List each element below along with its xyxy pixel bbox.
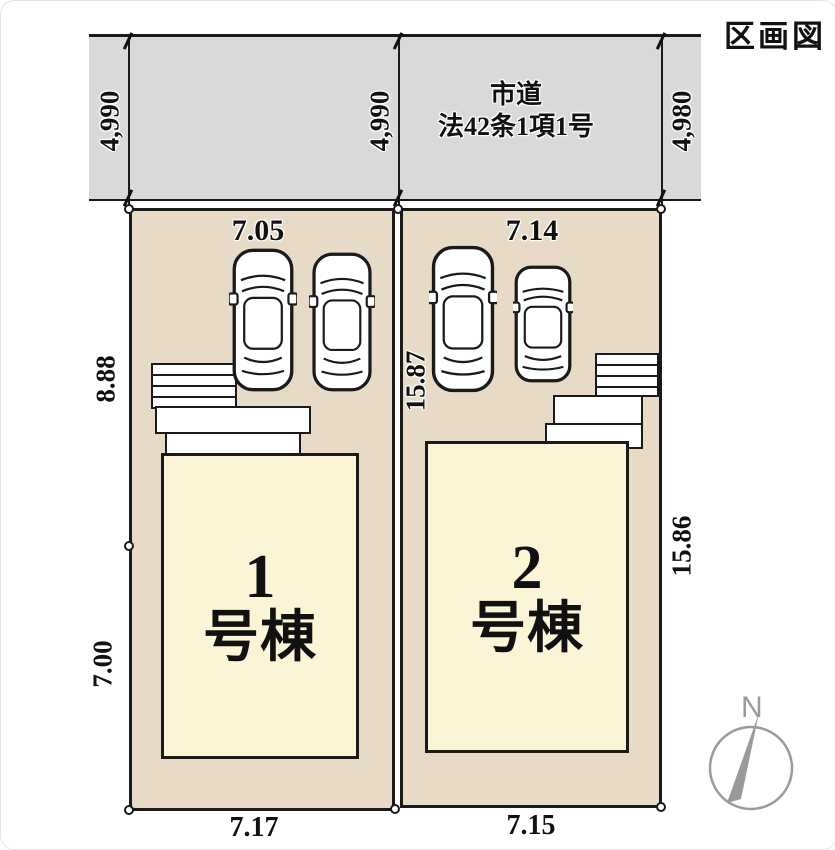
lot-1-left-upper-dim: 8.88 bbox=[91, 355, 122, 402]
lot-2-porch-step-upper bbox=[553, 395, 643, 425]
lot-2-left-dim: 15.87 bbox=[401, 351, 432, 412]
compact-car-icon bbox=[513, 264, 573, 384]
car-icon bbox=[229, 247, 297, 393]
road-name-line2: 法42条1項1号 bbox=[438, 112, 594, 141]
building-1-suffix: 号棟 bbox=[203, 609, 317, 667]
boundary-marker bbox=[393, 204, 403, 214]
boundary-marker bbox=[656, 802, 666, 812]
building-2-number: 2 bbox=[470, 536, 584, 600]
road-width-dim-left: 4,990 bbox=[95, 91, 126, 152]
building-1-number: 1 bbox=[203, 545, 317, 609]
building-1-label: 1 号棟 bbox=[203, 545, 317, 668]
lot-2-stairs bbox=[595, 353, 659, 397]
car-icon bbox=[429, 243, 497, 395]
boundary-marker bbox=[656, 204, 666, 214]
road-dimension-line-left bbox=[128, 34, 130, 210]
road-width-dim-right: 4,980 bbox=[667, 91, 698, 152]
building-2-suffix: 号棟 bbox=[470, 600, 584, 658]
building-2-label: 2 号棟 bbox=[470, 536, 584, 659]
road-width-dim-middle: 4,990 bbox=[365, 91, 396, 152]
compass-north-text: N bbox=[741, 691, 763, 725]
road-name-line1: 市道 bbox=[490, 80, 542, 109]
boundary-marker bbox=[124, 204, 134, 214]
building-1: 1 号棟 bbox=[161, 453, 359, 759]
lot-1-top-dim: 7.05 bbox=[232, 214, 285, 248]
boundary-marker bbox=[124, 805, 134, 815]
lot-1-porch-step-upper bbox=[155, 406, 311, 434]
boundary-marker bbox=[390, 804, 400, 814]
lot-2-right-dim: 15.86 bbox=[667, 516, 698, 577]
lot-1-stairs bbox=[151, 363, 237, 409]
boundary-marker bbox=[124, 541, 134, 551]
lot-2-top-dim: 7.14 bbox=[506, 214, 559, 248]
plot-plan: 区画図 市道 法42条1項1号 4,990 4,990 4,980 1 号棟 2… bbox=[0, 0, 835, 850]
page-title: 区画図 bbox=[724, 11, 826, 56]
road-top-boundary-line bbox=[89, 34, 701, 37]
car-icon bbox=[309, 251, 375, 393]
road-name: 市道 法42条1項1号 bbox=[366, 79, 666, 143]
lot-1-left-lower-dim: 7.00 bbox=[88, 640, 119, 687]
lot-2-bottom-dim: 7.15 bbox=[507, 810, 556, 842]
lot-1-bottom-dim: 7.17 bbox=[230, 812, 279, 844]
building-2: 2 号棟 bbox=[425, 441, 629, 753]
